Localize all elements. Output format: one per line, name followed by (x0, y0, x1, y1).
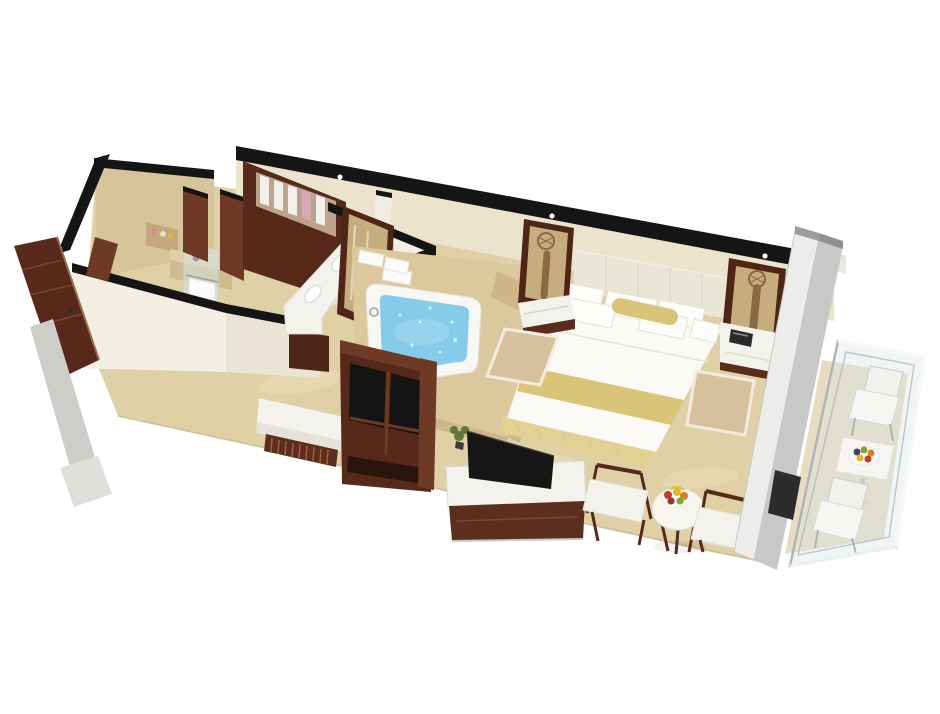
minibar-cabinet (340, 340, 437, 492)
pink-garment (302, 190, 311, 221)
rug-right (687, 371, 754, 435)
door-jamb-right (220, 193, 244, 281)
lamp-right (753, 288, 757, 330)
toiletry-bottle-pink (151, 229, 157, 235)
toiletry-bottle-gold (168, 233, 174, 239)
vanity-cabinet (289, 330, 329, 372)
toiletry-bottle-cream (160, 231, 166, 237)
door-handle (67, 307, 72, 312)
floorplan-stage (0, 0, 940, 714)
lamp-left (544, 254, 547, 296)
door-jamb-left (183, 190, 208, 262)
bolster-pillow (620, 306, 670, 317)
cabinet-side-panel (418, 358, 437, 490)
balcony-fruit-bowl (849, 447, 879, 466)
floorplan-rendering (0, 0, 940, 714)
